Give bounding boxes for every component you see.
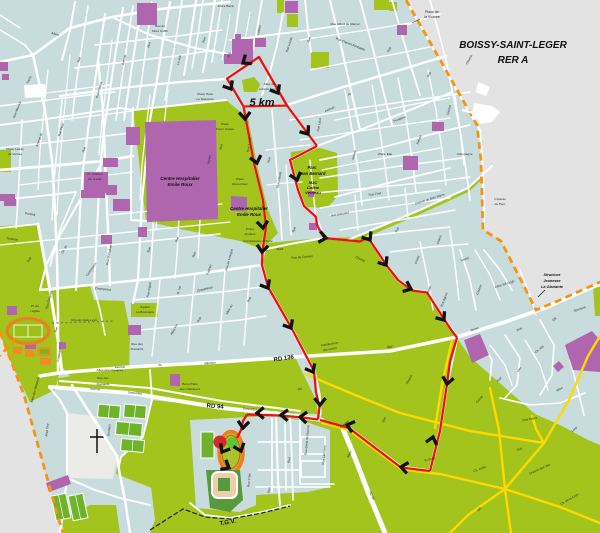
- svg-text:Jeunesse: Jeunesse: [543, 279, 560, 283]
- svg-text:Centre Hospitalier: Centre Hospitalier: [230, 206, 268, 211]
- svg-text:la Victoire: la Victoire: [424, 15, 440, 19]
- svg-text:Pl. de: Pl. de: [31, 304, 39, 308]
- svg-text:Bono Paris: Bono Paris: [182, 382, 198, 386]
- svg-text:Rue des: Rue des: [131, 342, 143, 346]
- svg-text:enfants heureux: enfants heureux: [259, 87, 282, 91]
- svg-text:Centre Hospitalier: Centre Hospitalier: [160, 176, 200, 181]
- svg-text:Foren Juares: Foren Juares: [216, 127, 235, 131]
- svg-text:Rue des: Rue des: [97, 376, 109, 380]
- svg-text:BOISSY-SAINT-LEGER: BOISSY-SAINT-LEGER: [459, 40, 567, 51]
- svg-text:Chemin Gaie Levit: Chemin Gaie Levit: [71, 318, 97, 322]
- svg-text:Place Hara: Place Hara: [197, 92, 213, 96]
- svg-text:de: de: [158, 363, 162, 367]
- svg-text:Jean Bernard: Jean Bernard: [299, 171, 326, 176]
- svg-text:Place: Place: [236, 177, 244, 181]
- svg-text:Emile Roux: Emile Roux: [237, 212, 261, 217]
- svg-text:Structure: Structure: [544, 273, 561, 277]
- svg-text:Verneau: Verneau: [305, 190, 321, 195]
- svg-text:Rue: Rue: [267, 487, 272, 493]
- svg-text:Combattants d Hyere: Combattants d Hyere: [243, 239, 273, 243]
- svg-text:Anciens: Anciens: [244, 232, 255, 236]
- svg-text:de Venoia: de Venoia: [8, 152, 22, 156]
- svg-text:RD 94: RD 94: [206, 403, 224, 410]
- svg-text:RER A: RER A: [498, 55, 529, 66]
- svg-text:Rampagne: Rampagne: [457, 152, 472, 156]
- svg-text:Pl des: Pl des: [246, 227, 255, 231]
- svg-text:Impasse: Impasse: [494, 197, 506, 201]
- svg-text:Emile Roux: Emile Roux: [167, 182, 192, 187]
- svg-text:La Glariante: La Glariante: [541, 285, 563, 289]
- svg-text:Place de: Place de: [425, 10, 439, 14]
- svg-text:Allee des: Allee des: [264, 82, 277, 86]
- svg-text:5 km: 5 km: [249, 97, 274, 109]
- svg-text:Mont Coffin: Mont Coffin: [152, 29, 168, 33]
- svg-text:Rue du: Rue du: [155, 24, 165, 28]
- svg-text:Flamants: Flamants: [97, 382, 110, 386]
- svg-text:De Gaulle: De Gaulle: [88, 177, 102, 181]
- svg-text:Avenue: Avenue: [90, 387, 101, 392]
- svg-text:La Spaventa: La Spaventa: [196, 97, 214, 101]
- svg-text:Place Leade: Place Leade: [6, 147, 23, 151]
- svg-text:Allee: Allee: [276, 247, 283, 252]
- svg-text:Place Elal: Place Elal: [378, 152, 392, 156]
- svg-text:Rue Alfred de Marcel: Rue Alfred de Marcel: [331, 22, 360, 26]
- svg-text:l eglise: l eglise: [30, 309, 40, 313]
- svg-text:Square: Square: [140, 305, 150, 309]
- svg-text:La Bruissiere: La Bruissiere: [136, 310, 154, 314]
- svg-text:Place: Place: [221, 122, 229, 126]
- svg-text:Place Bazin: Place Bazin: [218, 4, 235, 8]
- svg-text:Rue: Rue: [287, 457, 292, 463]
- svg-text:Flamants: Flamants: [131, 347, 144, 351]
- svg-text:des Chasseurs: des Chasseurs: [180, 387, 201, 391]
- svg-text:Parc: Parc: [307, 165, 317, 170]
- svg-text:du Parc: du Parc: [495, 202, 506, 206]
- svg-text:Pl. Charles: Pl. Charles: [87, 172, 103, 176]
- svg-text:Valenton: Valenton: [204, 361, 216, 366]
- svg-text:RDF: RDF: [387, 345, 394, 349]
- svg-text:Avenue: Avenue: [115, 365, 126, 370]
- svg-text:Rene Roux: Rene Roux: [232, 182, 248, 186]
